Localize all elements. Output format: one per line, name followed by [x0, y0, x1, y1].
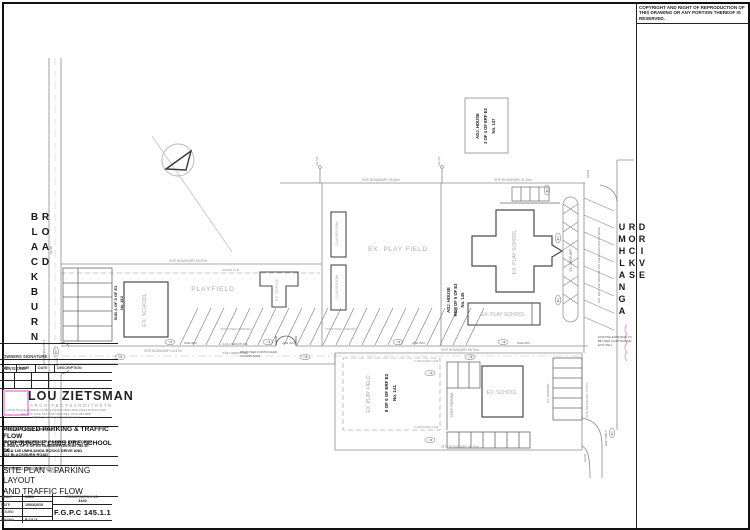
site-boundaries — [61, 166, 588, 450]
one-way-3: ONE WAY — [412, 341, 425, 345]
dim-boundary-south-bot: SITE BOUNDARY 56.70m — [441, 445, 479, 449]
classroom-1-label: CLASSROOM — [335, 222, 339, 246]
name-col: NAME — [17, 365, 36, 372]
umhlanga-rocks-drive-label: UMHLANGA ROCKS DRIVE — [617, 222, 647, 350]
ex-school-west-label: EX. SCHOOL — [142, 293, 148, 327]
firm-name: LOU ZIETSMAN — [28, 389, 110, 403]
dim-boundary-mid: SITE BOUNDARY 30.48m — [362, 178, 400, 182]
proposed-parking-label-2: PROPOSED PARKING — [325, 327, 357, 331]
architect-firm-block: LOU ZIETSMAN ARCHITECTS ARGITEKTE 3 PINE… — [0, 387, 112, 418]
date-value: 19/03/2015 — [23, 502, 52, 509]
kerb-3: KERB — [586, 170, 590, 178]
revisions-title: REVISIONS — [0, 357, 118, 365]
drawing-title-line1: SITE PLAN – PARKING LAYOUT — [3, 466, 115, 487]
proposed-parking-label-1: PROPOSED PARKING — [220, 327, 252, 331]
dim-boundary-south-top: SITE BOUNDARY 56.70m — [441, 348, 479, 352]
revisions-header-row: REV. NAME DATE DESCRIPTION — [0, 365, 112, 373]
classroom-2-label: CLASSROOM — [335, 275, 339, 299]
erf412-line2: No. 412 — [119, 295, 124, 310]
erf141-line2: No. 141 — [392, 385, 397, 402]
gate-note-2: ACCESS GATE — [240, 354, 260, 358]
ex-office-building — [260, 272, 298, 307]
architect-signature-block: ARCHITECT'S SIGNATURE: — [0, 521, 118, 530]
building-line-label-2: 7m BUILDING LINE — [414, 425, 439, 429]
drawing-number: F.G.P.C 145.1.1 — [53, 505, 112, 517]
scale-label: SCALE — [0, 494, 23, 501]
erf141-line1: 8 OF 6 OF ERF E2 — [384, 373, 389, 412]
adj147-line1: ADJ. HOUSE — [475, 113, 480, 139]
dim-boundary-east-top: SITE BOUNDARY 31.45m — [494, 178, 532, 182]
scale-value: 1/500 — [23, 494, 52, 501]
station-2: (93.90) — [437, 156, 441, 166]
rev-col: REV. — [0, 365, 17, 372]
dim-boundary-west-south: SITE BOUNDARY 63.57m — [144, 349, 182, 353]
street-parking-label: EXT. EXISTING PARKING OFF UMHLANGA ROCKS… — [597, 227, 601, 303]
dim-boundary-west: SITE BOUNDARY 63.57m — [169, 259, 207, 263]
adj145-line1: ADJ. HOUSE — [446, 287, 451, 313]
one-way-1: ONE WAY — [184, 341, 197, 345]
parking-north-stalls[interactable] — [500, 187, 560, 203]
kerb-4: KERB — [583, 454, 587, 462]
staff-parking-label: STAFF PARKING — [450, 392, 454, 417]
drawing-sheet: PLAYFIELD EX. PLAY FIELD EX. SCHOOL EX. … — [0, 0, 750, 530]
entry-note-3: EXIT ONLY — [598, 343, 612, 347]
erf412-line1: SUB A OF 5 OF E3 — [113, 285, 118, 321]
ex-play-field-south-label: EX. PLAY FIELD — [366, 375, 372, 413]
ex-play-field-label: EX. PLAY FIELD — [368, 246, 428, 253]
parking-west-stalls[interactable] — [63, 268, 112, 341]
drawing-title: SITE PLAN – PARKING LAYOUT AND TRAFFIC F… — [0, 464, 118, 497]
dim-boundary-east: SITE BOUNDARY 77.16m — [585, 382, 589, 418]
date-col: DATE — [36, 365, 55, 372]
project-detail: ON COMBINED REM OF 5 OF E3 & 8 OF 6 OF E… — [0, 439, 118, 457]
ex-play-school-annex-label: EX. PLAY SCHOOL — [481, 312, 525, 318]
description-col: DESCRIPTION — [55, 365, 112, 372]
playfield-label: PLAYFIELD — [191, 286, 235, 293]
ex-parking-label: EX. PARKING — [546, 383, 550, 403]
date-label: DATE — [0, 502, 23, 509]
station-1: (93.90) — [315, 156, 319, 166]
ex-play-school-label: EX. PLAY SCHOOL — [512, 230, 518, 274]
adj147-line3: No. 147 — [491, 118, 496, 134]
issued-label: ISSUED — [0, 509, 23, 516]
adj145-line2: REM OF 5 OF E3 — [453, 283, 458, 317]
one-way-4: ONE WAY — [517, 341, 530, 345]
servitude-1: 2.44m SERVITUDE — [222, 342, 247, 346]
north-arrow-icon — [152, 136, 232, 252]
one-way-2: ONE WAY — [282, 341, 295, 345]
adj145-line3: No. 145 — [460, 292, 465, 308]
ex-school-south-label: EX. SCHOOL — [487, 390, 518, 396]
exit-only-label: EXIT ONLY — [604, 430, 608, 445]
adj147-line2: 3 OF 4 OF ERF E2 — [483, 108, 488, 144]
drawing-info-table: SCALE1/500 DATE19/03/2015 ISSUED DRAWNB.… — [0, 494, 112, 521]
water-line-label: WATER LINE — [222, 268, 239, 272]
ex-office-label: EX. OFFICE — [274, 279, 279, 302]
copyright-note: COPYRIGHT AND RIGHT OF REPRODUCTION OF T… — [637, 4, 749, 24]
parking-east-stalls[interactable] — [553, 358, 582, 420]
drop-off-label: EX. DROP-OFF — [569, 249, 573, 272]
building-line-label-1: 7m BUILDING LINE — [414, 359, 439, 363]
issued-value — [23, 509, 52, 516]
